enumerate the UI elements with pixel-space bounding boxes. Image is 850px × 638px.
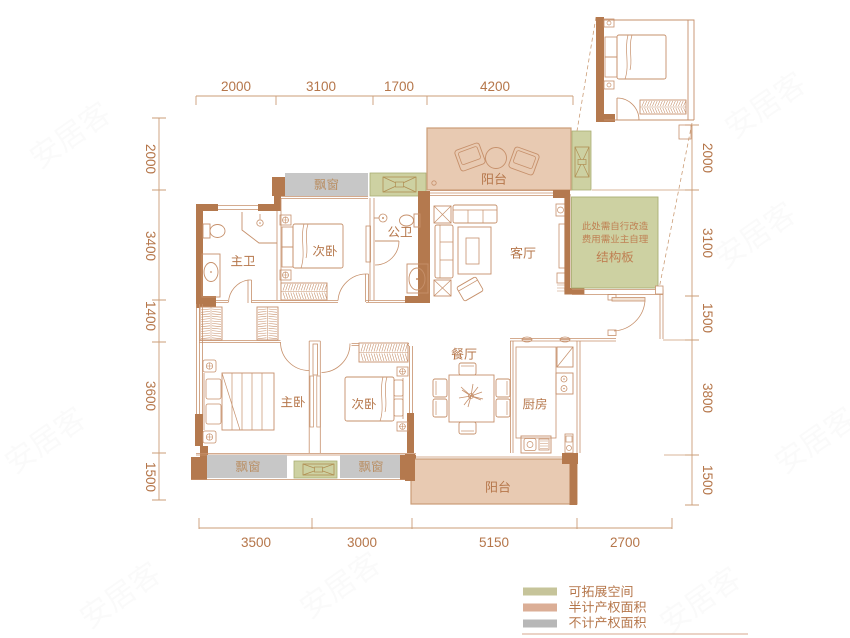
svg-text:3600: 3600: [143, 381, 158, 411]
svg-text:2000: 2000: [143, 144, 158, 174]
svg-text:3000: 3000: [347, 535, 377, 550]
svg-text:1500: 1500: [700, 465, 715, 495]
svg-text:3800: 3800: [700, 383, 715, 413]
svg-text:1400: 1400: [143, 301, 158, 331]
svg-text:3100: 3100: [306, 79, 336, 94]
svg-text:1700: 1700: [384, 79, 414, 94]
svg-text:3100: 3100: [700, 228, 715, 258]
svg-text:2700: 2700: [610, 535, 640, 550]
svg-text:1500: 1500: [143, 462, 158, 492]
svg-text:2000: 2000: [700, 143, 715, 173]
svg-text:4200: 4200: [480, 79, 510, 94]
svg-text:2000: 2000: [221, 79, 251, 94]
svg-text:3500: 3500: [241, 535, 271, 550]
svg-text:5150: 5150: [479, 535, 509, 550]
svg-text:1500: 1500: [700, 303, 715, 333]
svg-text:3400: 3400: [143, 231, 158, 261]
